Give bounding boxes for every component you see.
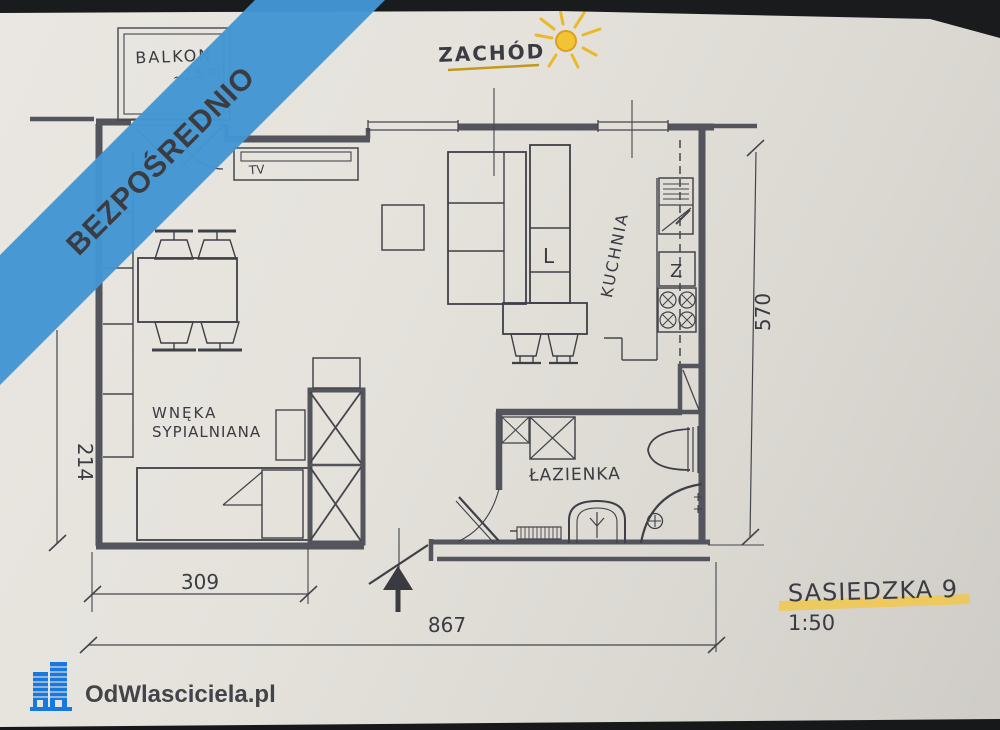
blanket-fold bbox=[223, 472, 262, 505]
title-block: SASIEDZKA 9 1:50 bbox=[779, 575, 970, 635]
chair bbox=[152, 322, 196, 350]
photo-edge-bottom bbox=[0, 719, 1000, 730]
chair bbox=[198, 322, 242, 350]
chair bbox=[198, 231, 236, 259]
window-2 bbox=[598, 120, 668, 132]
photo-edge-top bbox=[0, 0, 1000, 38]
banner: BEZPOŚREDNIO bbox=[0, 0, 433, 433]
washing-machine bbox=[502, 417, 575, 459]
kitchen-tall-unit bbox=[530, 145, 570, 303]
dimension-214 bbox=[49, 330, 66, 551]
wardrobe bbox=[310, 358, 363, 543]
compass: ZACHÓD bbox=[438, 9, 600, 70]
tv-label: TV bbox=[248, 162, 266, 177]
radiator bbox=[510, 527, 561, 539]
kitchen-label: KUCHNIA bbox=[597, 211, 632, 300]
scale-label: 1:50 bbox=[788, 611, 835, 635]
bathroom-label: ŁAZIENKA bbox=[528, 464, 621, 486]
windows bbox=[368, 88, 668, 176]
fridge-label: L bbox=[543, 244, 555, 268]
side-table bbox=[382, 205, 424, 250]
dishwasher-label: Z bbox=[670, 261, 682, 282]
watermark-logo: OdWlasciciela.pl bbox=[30, 662, 276, 709]
stool bbox=[511, 334, 541, 363]
dim-867-label: 867 bbox=[428, 613, 466, 637]
shower bbox=[641, 484, 702, 543]
watermark-label: OdWlasciciela.pl bbox=[85, 681, 276, 708]
street-title: SASIEDZKA 9 bbox=[788, 575, 959, 607]
sun-icon bbox=[536, 9, 600, 67]
compass-label: ZACHÓD bbox=[438, 39, 546, 67]
wc-with-cistern bbox=[648, 426, 698, 473]
dim-309-label: 309 bbox=[181, 570, 219, 594]
floorplan-photo: BALKON ~2,5 m² TV bbox=[0, 0, 1000, 730]
toilet bbox=[569, 501, 625, 543]
stool bbox=[548, 334, 578, 363]
bathroom-door bbox=[456, 489, 499, 543]
chair bbox=[155, 231, 193, 259]
window-1 bbox=[368, 120, 458, 132]
kitchen-sink bbox=[659, 178, 693, 234]
kitchen-island bbox=[503, 303, 587, 363]
bed bbox=[137, 468, 310, 540]
dim-214-label: 214 bbox=[73, 443, 97, 481]
stove bbox=[658, 288, 696, 332]
wardrobe-top-box bbox=[313, 358, 360, 388]
dining-table bbox=[138, 231, 242, 350]
burner bbox=[660, 292, 695, 328]
sofa bbox=[448, 152, 526, 304]
buildings-icon bbox=[30, 662, 72, 709]
dimension-570 bbox=[708, 140, 764, 545]
floorplan-svg: BALKON ~2,5 m² TV bbox=[0, 0, 1000, 730]
nook-label-line2: SYPIALNIANA bbox=[152, 423, 261, 441]
dim-570-label: 570 bbox=[751, 293, 775, 331]
nook-label-line1: WNĘKA bbox=[152, 404, 217, 422]
nightstand bbox=[276, 410, 305, 460]
